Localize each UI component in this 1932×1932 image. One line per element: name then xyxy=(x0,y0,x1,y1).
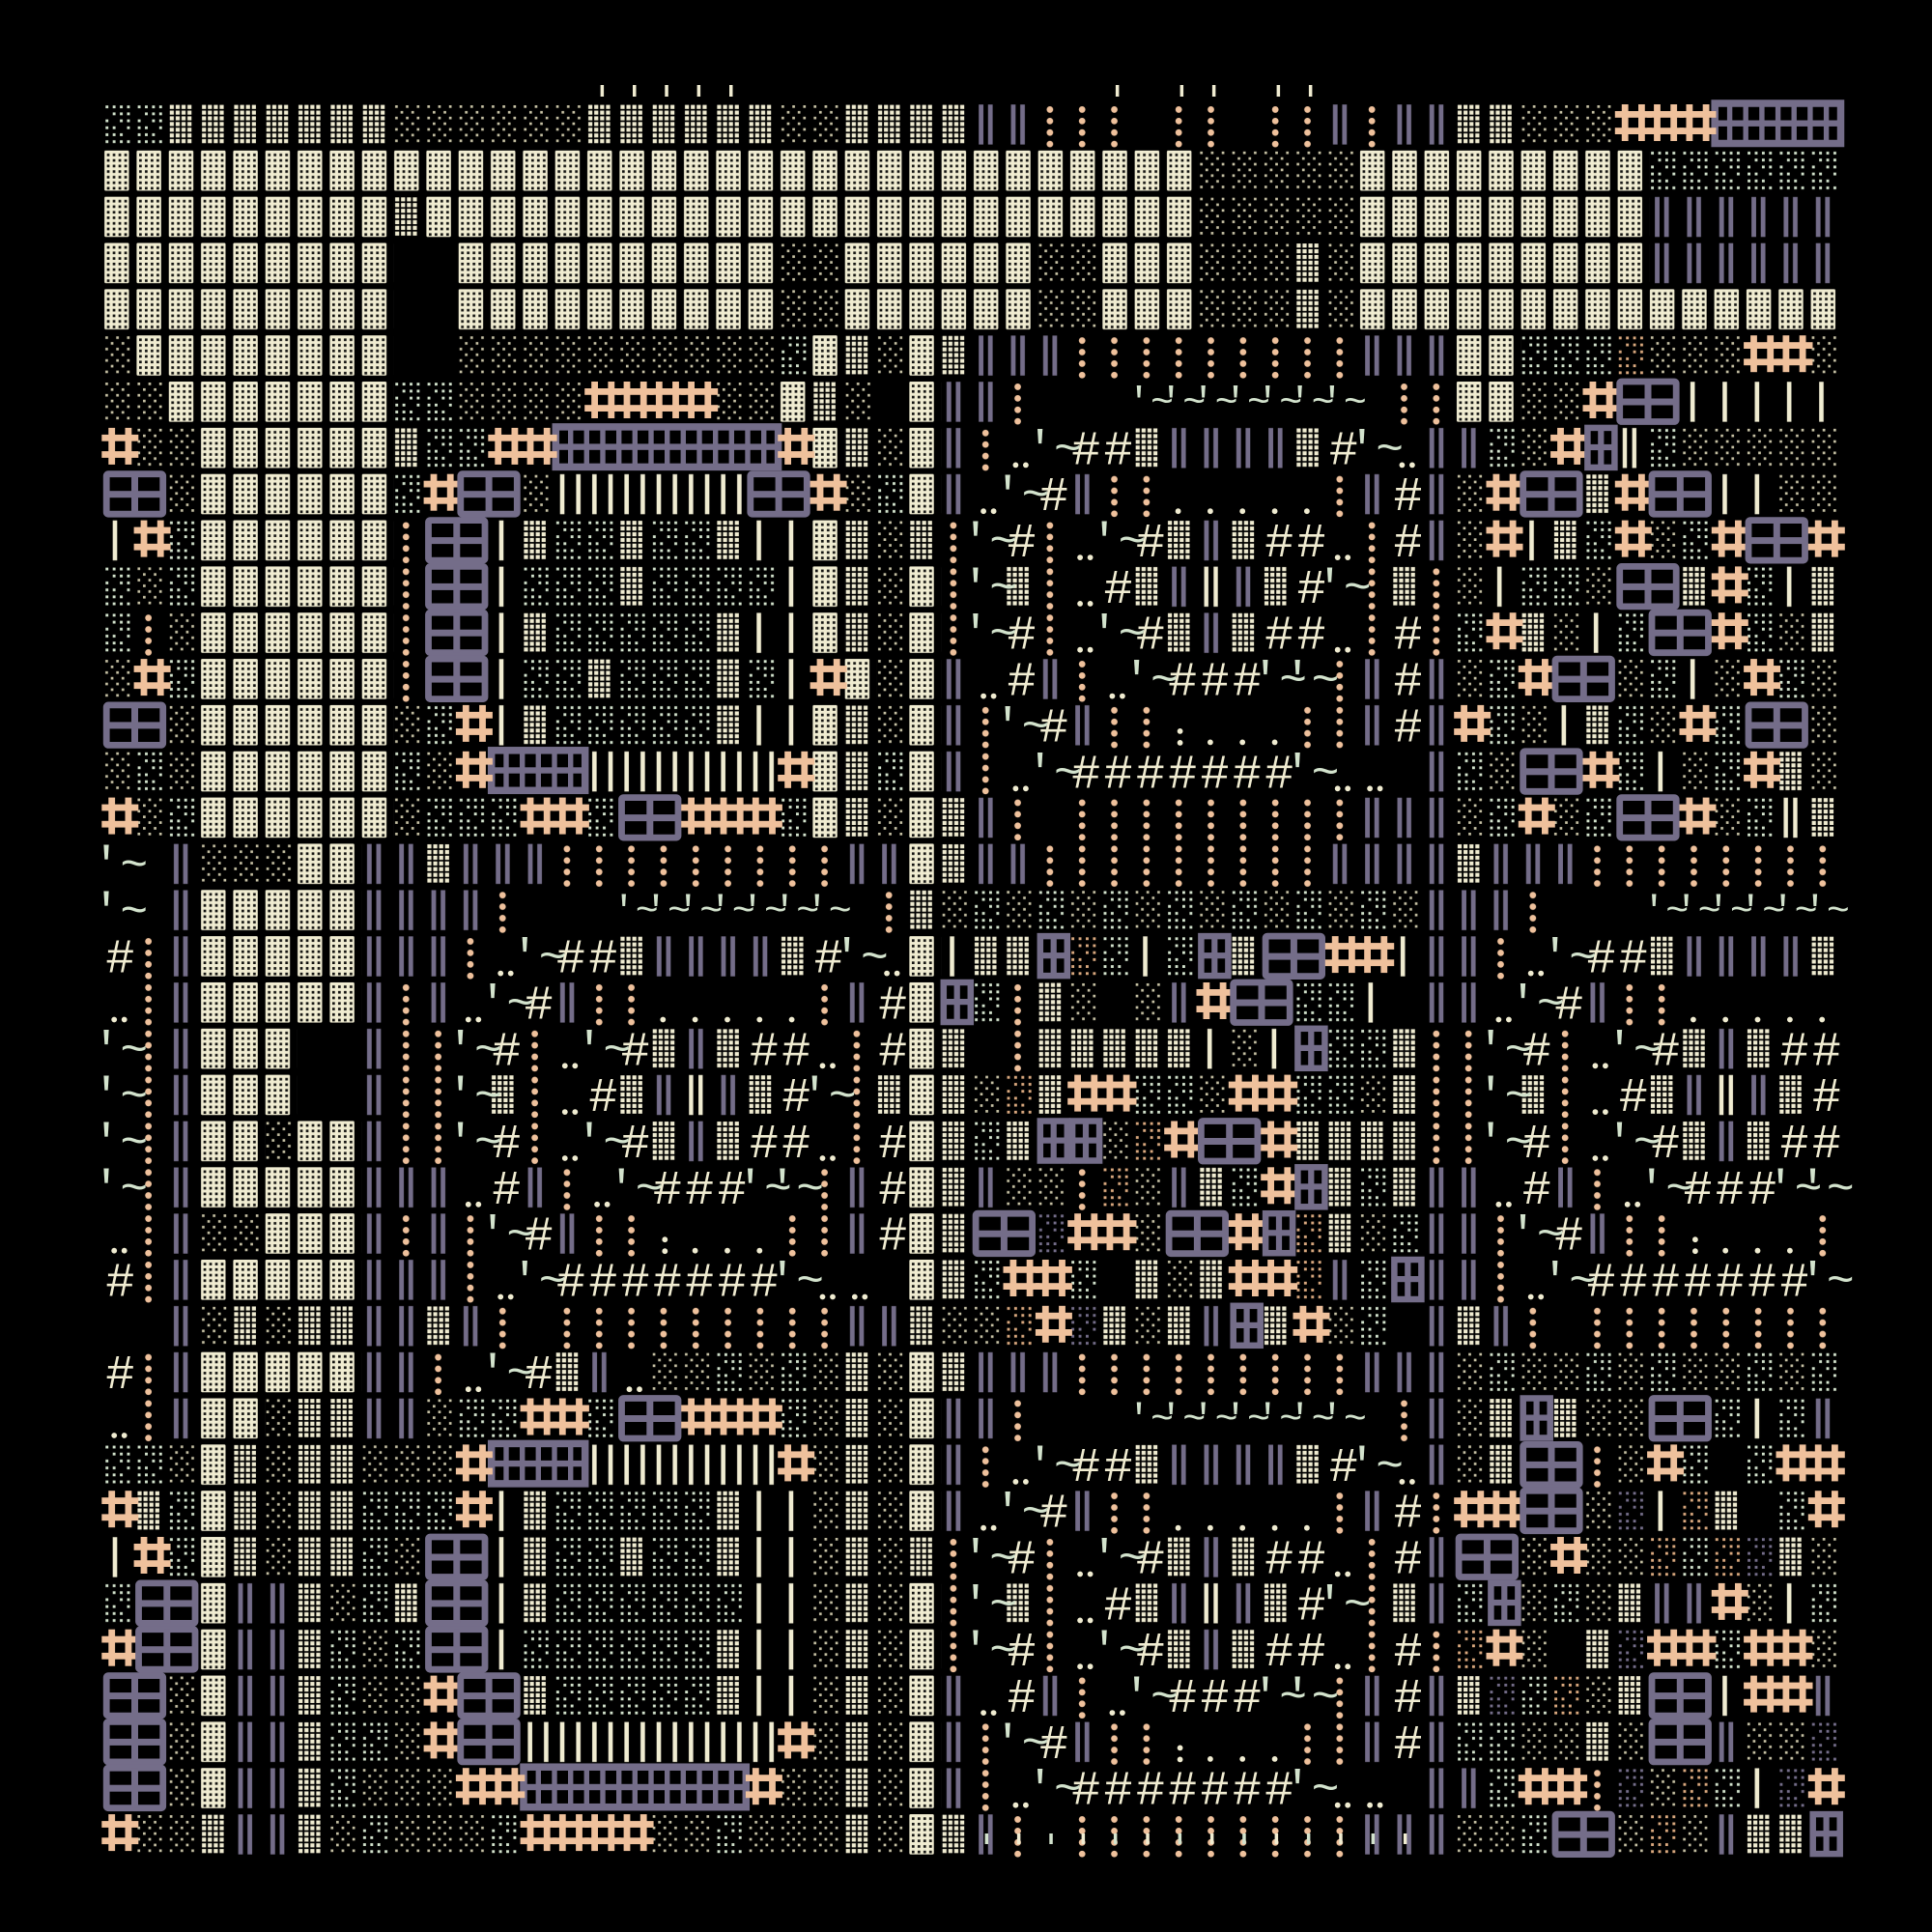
svg-text:#: # xyxy=(1071,1765,1100,1820)
svg-text:'~: '~ xyxy=(1804,891,1850,934)
svg-text:#: # xyxy=(1071,424,1100,479)
svg-text:#: # xyxy=(1587,933,1616,988)
svg-text:'~: '~ xyxy=(1321,383,1367,426)
svg-text:#: # xyxy=(588,933,617,988)
svg-text:#: # xyxy=(1233,1765,1262,1820)
svg-text:#: # xyxy=(1394,517,1423,572)
svg-text:#: # xyxy=(685,1257,714,1312)
svg-text:#: # xyxy=(1104,424,1133,479)
svg-text:#: # xyxy=(718,1257,747,1312)
svg-text:#: # xyxy=(1716,1257,1745,1312)
svg-text:'~: '~ xyxy=(1321,1400,1367,1443)
svg-text:'~: '~ xyxy=(93,1164,149,1216)
svg-text:#: # xyxy=(1684,1164,1713,1219)
svg-text:'~: '~ xyxy=(768,1164,824,1216)
svg-text:'~: '~ xyxy=(806,891,852,934)
svg-text:#: # xyxy=(1168,1765,1197,1820)
svg-text:#: # xyxy=(1039,1488,1068,1543)
svg-text:#: # xyxy=(1168,748,1197,803)
svg-text:#: # xyxy=(1394,701,1423,756)
svg-text:#: # xyxy=(588,1257,617,1312)
svg-text:'~: '~ xyxy=(93,1072,149,1124)
svg-text:#: # xyxy=(1136,748,1165,803)
svg-text:#: # xyxy=(685,1164,714,1219)
svg-text:#: # xyxy=(1201,656,1230,711)
svg-text:'~: '~ xyxy=(961,1580,1017,1633)
svg-text:#: # xyxy=(1136,517,1165,572)
svg-text:#: # xyxy=(1104,1765,1133,1820)
svg-text:#: # xyxy=(1394,1719,1423,1774)
svg-text:#: # xyxy=(105,933,134,988)
svg-text:#: # xyxy=(653,1164,682,1219)
svg-text:'~: '~ xyxy=(961,563,1017,615)
svg-text:#: # xyxy=(556,933,585,988)
svg-text:#: # xyxy=(1684,1257,1713,1312)
svg-text:#: # xyxy=(878,1025,907,1080)
svg-text:#: # xyxy=(1168,1672,1197,1727)
svg-text:'~: '~ xyxy=(93,887,149,939)
svg-text:#: # xyxy=(653,1257,682,1312)
svg-text:'~: '~ xyxy=(1348,425,1404,477)
svg-text:#: # xyxy=(1619,933,1648,988)
svg-text:'~: '~ xyxy=(1284,656,1340,708)
svg-text:#: # xyxy=(1039,470,1068,526)
svg-text:#: # xyxy=(1201,748,1230,803)
svg-text:#: # xyxy=(1747,1257,1776,1312)
svg-text:'~: '~ xyxy=(93,1119,149,1171)
svg-text:#: # xyxy=(1716,1164,1745,1219)
svg-text:'~: '~ xyxy=(801,1072,857,1124)
svg-text:'~: '~ xyxy=(1477,1072,1533,1124)
svg-text:#: # xyxy=(1233,748,1262,803)
svg-text:'~: '~ xyxy=(1316,563,1372,615)
svg-text:#: # xyxy=(1587,1257,1616,1312)
svg-text:'~: '~ xyxy=(1284,749,1340,801)
svg-text:#: # xyxy=(556,1257,585,1312)
svg-text:#: # xyxy=(1264,517,1293,572)
svg-text:'~: '~ xyxy=(1284,1765,1340,1817)
svg-text:#: # xyxy=(1104,1441,1133,1496)
svg-text:#: # xyxy=(1201,1672,1230,1727)
svg-text:#: # xyxy=(1554,980,1583,1035)
svg-text:#: # xyxy=(1651,1025,1680,1080)
svg-text:#: # xyxy=(1264,1534,1293,1589)
svg-text:#: # xyxy=(525,1349,554,1404)
svg-text:#: # xyxy=(1201,1765,1230,1820)
svg-text:'~: '~ xyxy=(93,1026,149,1078)
svg-text:#: # xyxy=(1071,748,1100,803)
svg-text:'~: '~ xyxy=(833,933,889,985)
svg-text:#: # xyxy=(1651,1257,1680,1312)
svg-text:#: # xyxy=(750,1025,779,1080)
svg-text:'~: '~ xyxy=(1348,1441,1404,1493)
svg-text:'~: '~ xyxy=(93,840,149,893)
svg-text:'~: '~ xyxy=(768,1257,824,1309)
svg-text:#: # xyxy=(1619,1257,1648,1312)
svg-text:#: # xyxy=(878,1210,907,1265)
svg-text:'~: '~ xyxy=(1316,1580,1372,1633)
svg-text:#: # xyxy=(1168,656,1197,711)
svg-text:#: # xyxy=(525,980,554,1035)
svg-text:'~: '~ xyxy=(1799,1257,1855,1309)
svg-text:#: # xyxy=(621,1257,650,1312)
svg-text:#: # xyxy=(1394,1534,1423,1589)
svg-text:'~: '~ xyxy=(446,1072,502,1124)
svg-text:#: # xyxy=(621,1025,650,1080)
svg-text:#: # xyxy=(1136,1765,1165,1820)
svg-text:#: # xyxy=(1780,1025,1809,1080)
svg-text:'~: '~ xyxy=(1284,1673,1340,1725)
svg-text:#: # xyxy=(105,1257,134,1312)
svg-text:#: # xyxy=(1104,748,1133,803)
svg-text:#: # xyxy=(105,1349,134,1404)
svg-text:#: # xyxy=(1136,1534,1165,1589)
svg-text:#: # xyxy=(1071,1441,1100,1496)
svg-text:'~: '~ xyxy=(1799,1164,1855,1216)
